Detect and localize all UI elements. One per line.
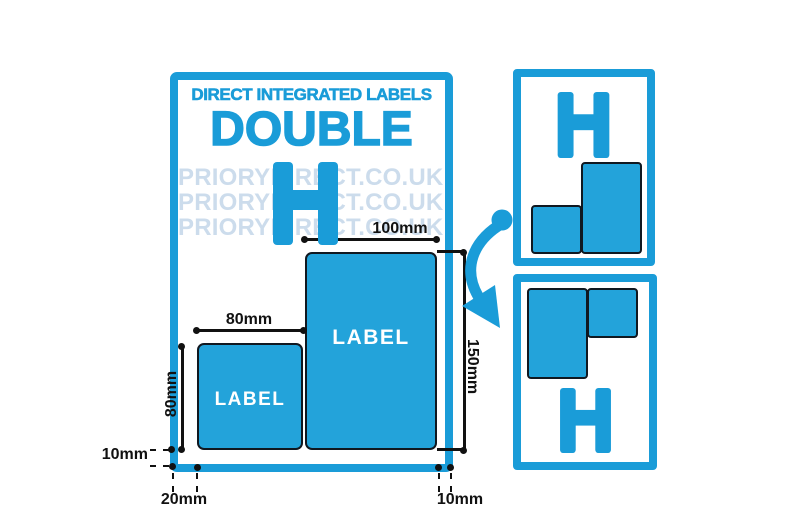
dim-dot xyxy=(168,446,175,453)
letter-h-icon xyxy=(273,162,338,245)
dim-dash xyxy=(150,465,169,467)
small-label-text: LABEL xyxy=(199,389,301,411)
dim-dash xyxy=(438,473,440,492)
mini-small-label xyxy=(587,288,638,338)
dim-dot xyxy=(447,464,454,471)
double-h-label-diagram: DIRECT INTEGRATED LABELS DOUBLE PRIORYDI… xyxy=(0,0,795,530)
large-label-text: LABEL xyxy=(307,326,435,350)
letter-h-icon xyxy=(557,388,614,453)
dim-label-left-offset: 20mm xyxy=(158,491,210,509)
dim-dash xyxy=(196,473,198,492)
dim-line-80mm-height xyxy=(181,346,184,450)
letter-h-icon xyxy=(557,92,610,158)
dim-dot xyxy=(460,447,467,454)
dim-label-80mm-width: 80mm xyxy=(209,311,289,329)
dim-dash xyxy=(150,449,169,451)
dim-dash xyxy=(450,473,452,492)
dim-label-bottom-margin: 10mm xyxy=(100,446,148,464)
dim-dot xyxy=(435,464,442,471)
dim-label-100mm: 100mm xyxy=(355,220,445,238)
mini-large-label xyxy=(581,162,642,254)
dim-dot xyxy=(178,446,185,453)
large-label-box: LABEL xyxy=(305,252,437,450)
dim-dash xyxy=(172,473,174,492)
dim-dot xyxy=(193,327,200,334)
dim-dot xyxy=(194,464,201,471)
dim-label-80mm-height: 80mm xyxy=(163,369,179,419)
dim-label-right-margin: 10mm xyxy=(434,491,486,509)
dim-dot xyxy=(300,327,307,334)
product-title: DOUBLE xyxy=(170,106,453,154)
mini-small-label xyxy=(531,205,582,254)
dim-dot xyxy=(178,343,185,350)
product-kicker: DIRECT INTEGRATED LABELS xyxy=(170,85,453,105)
mini-large-label xyxy=(527,288,588,379)
dim-label-150mm: 150mm xyxy=(465,339,481,391)
dim-dot xyxy=(169,463,176,470)
dim-line-80mm-width xyxy=(197,329,304,332)
small-label-box: LABEL xyxy=(197,343,303,450)
